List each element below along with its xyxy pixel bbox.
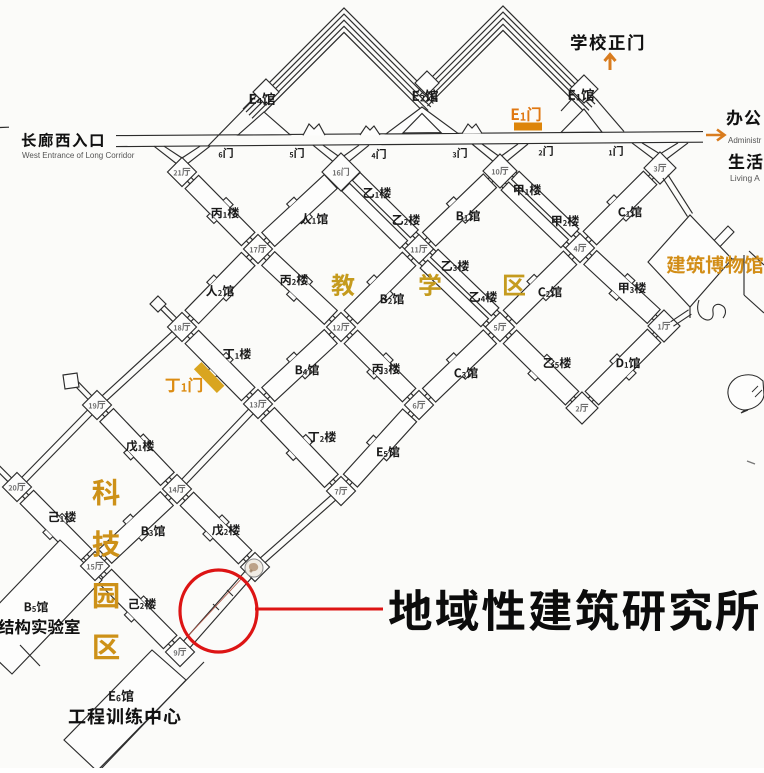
svg-text:Administr: Administr	[728, 136, 762, 145]
svg-text:West Entrance of Long Corridor: West Entrance of Long Corridor	[22, 151, 135, 160]
svg-text:Living A: Living A	[730, 173, 760, 183]
